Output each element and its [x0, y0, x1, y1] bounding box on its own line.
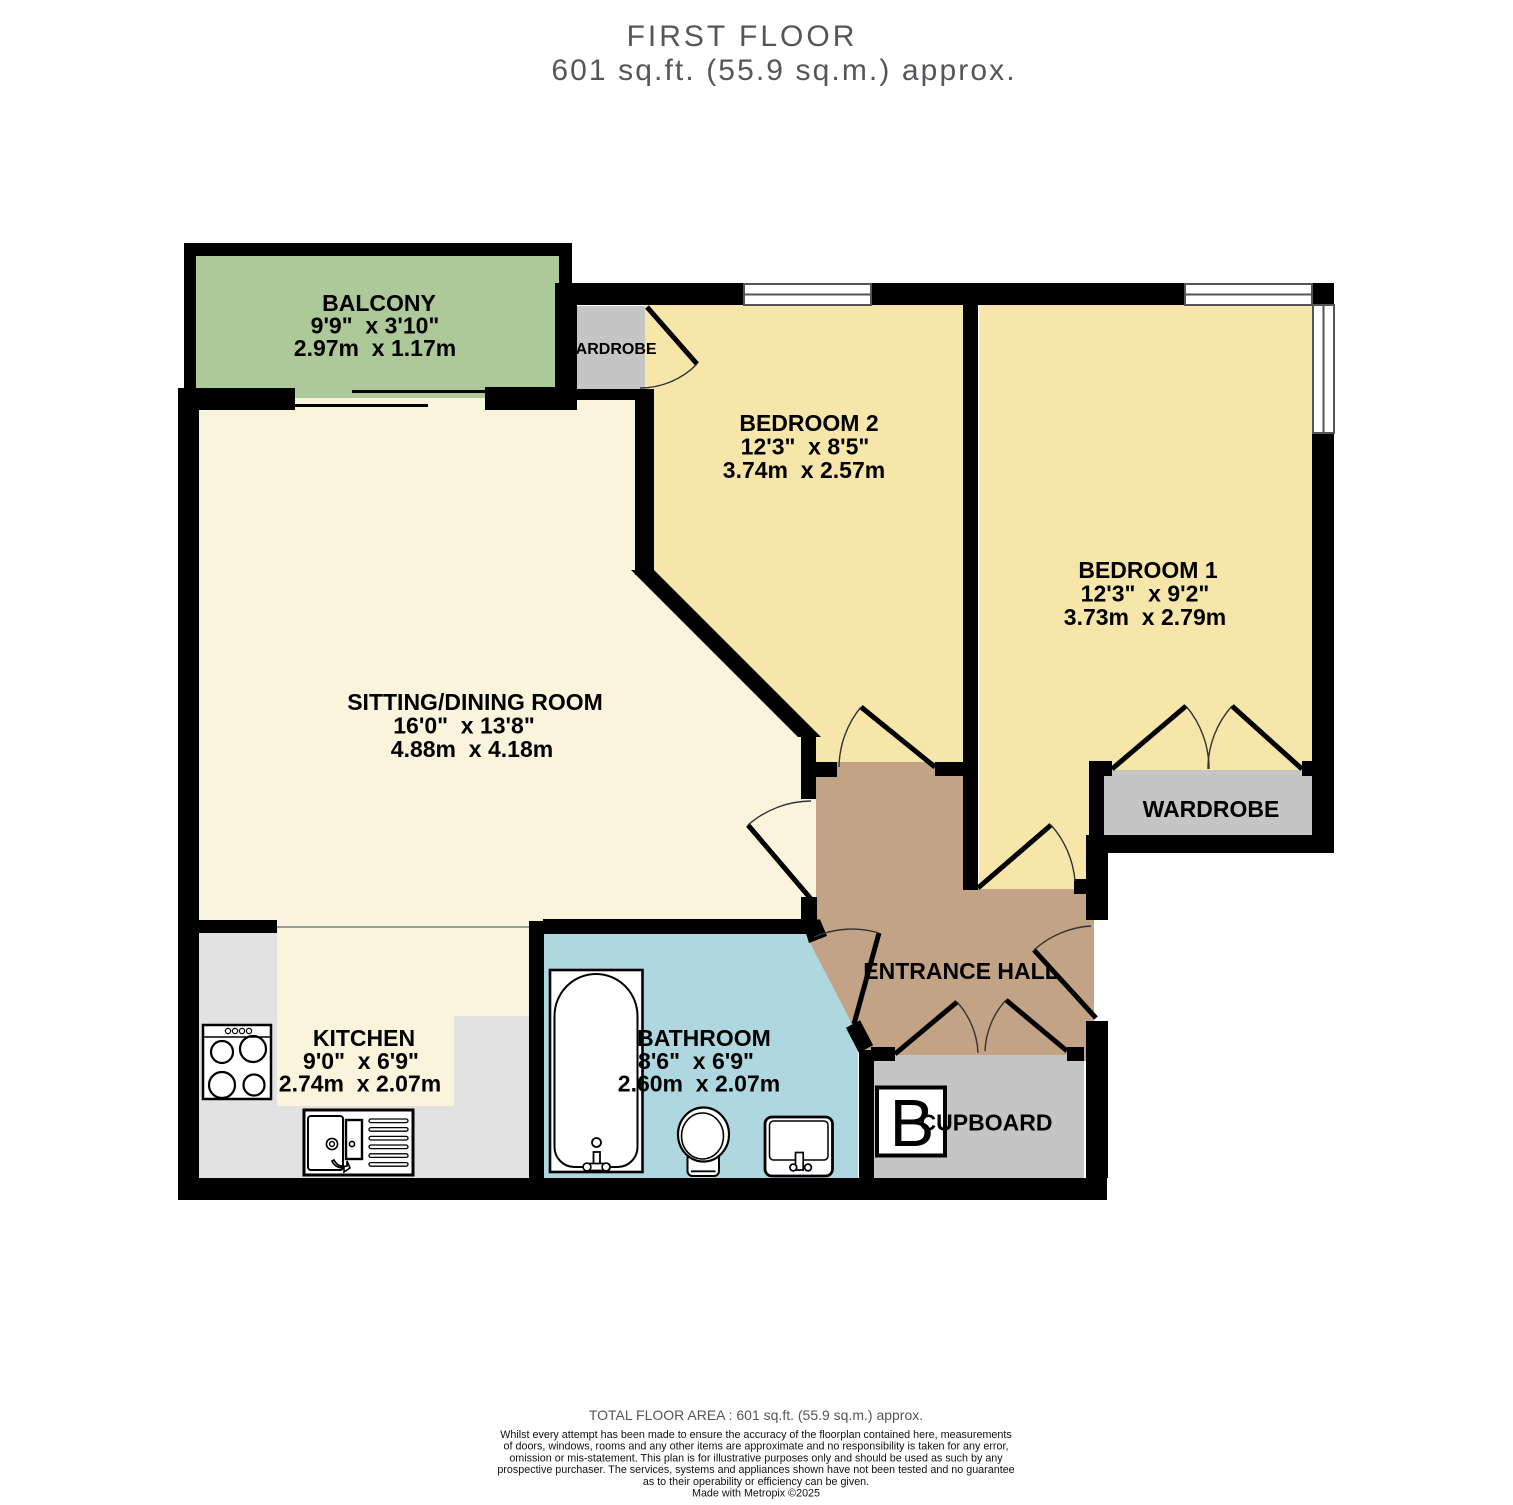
svg-text:as to their operability or eff: as to their operability or efficiency ca…: [643, 1476, 869, 1488]
svg-text:Whilst every attempt has been: Whilst every attempt has been made to en…: [500, 1429, 1012, 1441]
svg-text:CUPBOARD: CUPBOARD: [920, 1110, 1053, 1136]
svg-text:Made with Metropix ©2025: Made with Metropix ©2025: [692, 1488, 820, 1500]
svg-text:FIRST FLOOR: FIRST FLOOR: [627, 20, 858, 53]
svg-text:12'3" x 9'2": 12'3" x 9'2": [1081, 581, 1210, 607]
svg-text:601 sq.ft. (55.9 sq.m.) approx: 601 sq.ft. (55.9 sq.m.) approx.: [551, 54, 1016, 87]
svg-text:BEDROOM 1: BEDROOM 1: [1078, 557, 1218, 583]
svg-text:2.97m x 1.17m: 2.97m x 1.17m: [294, 335, 456, 361]
svg-text:ENTRANCE HALL: ENTRANCE HALL: [863, 958, 1059, 984]
svg-text:3.74m x 2.57m: 3.74m x 2.57m: [723, 457, 885, 483]
svg-text:of doors, windows, rooms and a: of doors, windows, rooms and any other i…: [504, 1441, 1009, 1453]
svg-text:omission or mis-statement. Thi: omission or mis-statement. This plan is …: [509, 1452, 1003, 1464]
svg-text:SITTING/DINING ROOM: SITTING/DINING ROOM: [347, 689, 603, 715]
svg-text:WARDROBE: WARDROBE: [1143, 796, 1280, 822]
svg-text:2.60m x 2.07m: 2.60m x 2.07m: [618, 1071, 780, 1097]
svg-text:12'3" x 8'5": 12'3" x 8'5": [741, 434, 870, 460]
svg-text:4.88m x 4.18m: 4.88m x 4.18m: [391, 736, 553, 762]
svg-text:TOTAL FLOOR AREA : 601 sq.ft.: TOTAL FLOOR AREA : 601 sq.ft. (55.9 sq.m…: [589, 1407, 923, 1423]
svg-text:3.73m x 2.79m: 3.73m x 2.79m: [1064, 604, 1226, 630]
svg-text:2.74m x 2.07m: 2.74m x 2.07m: [279, 1071, 441, 1097]
svg-text:prospective purchaser. The ser: prospective purchaser. The services, sys…: [497, 1464, 1014, 1476]
svg-text:WARDROBE: WARDROBE: [561, 341, 656, 358]
svg-text:BEDROOM 2: BEDROOM 2: [739, 410, 878, 436]
svg-text:16'0" x 13'8": 16'0" x 13'8": [393, 713, 534, 739]
